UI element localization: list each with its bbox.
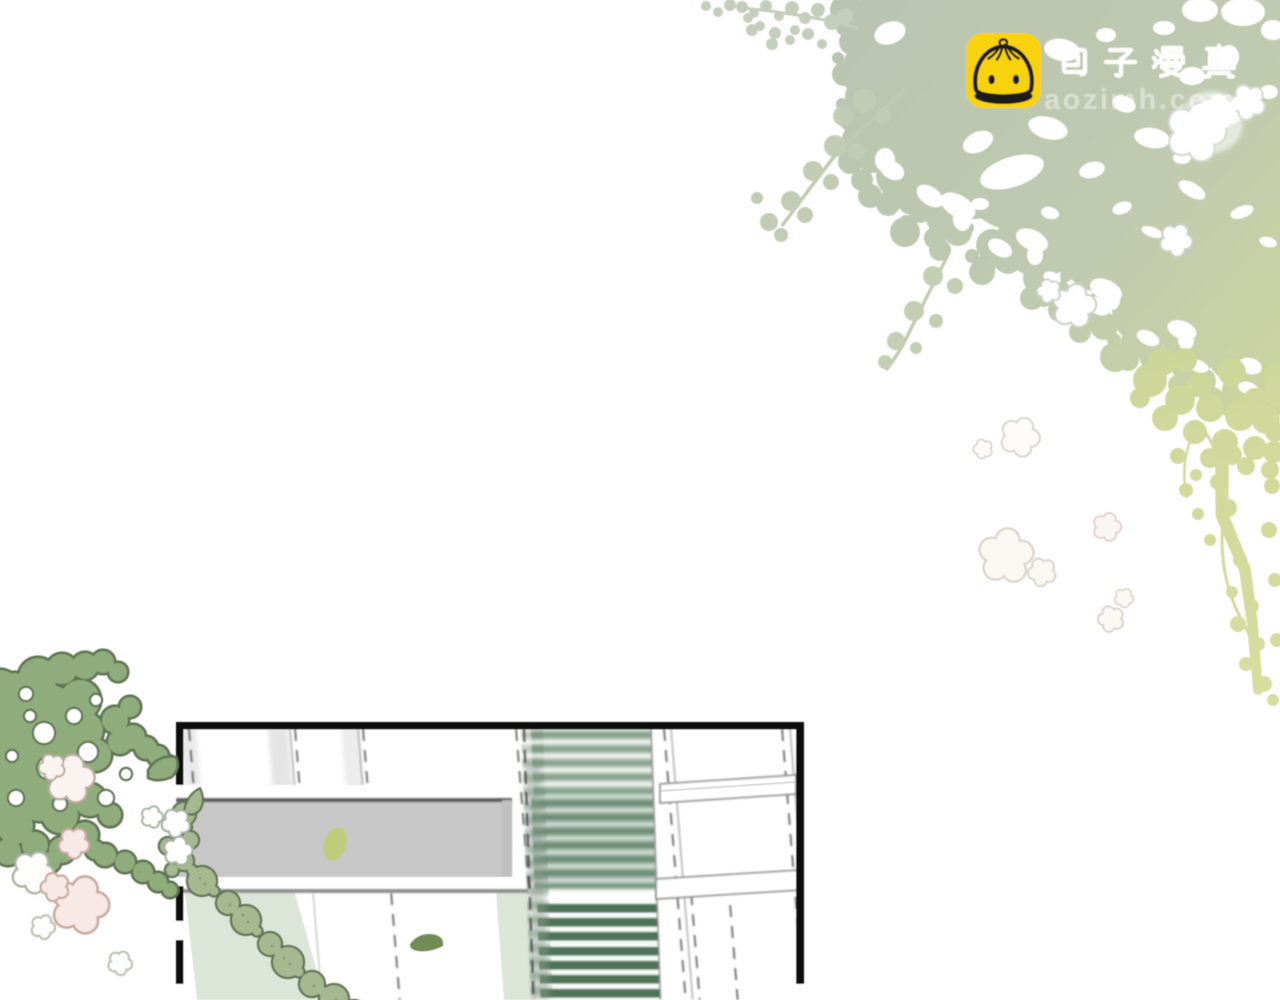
svg-text:aozimh.com: aozimh.com — [1044, 84, 1237, 116]
